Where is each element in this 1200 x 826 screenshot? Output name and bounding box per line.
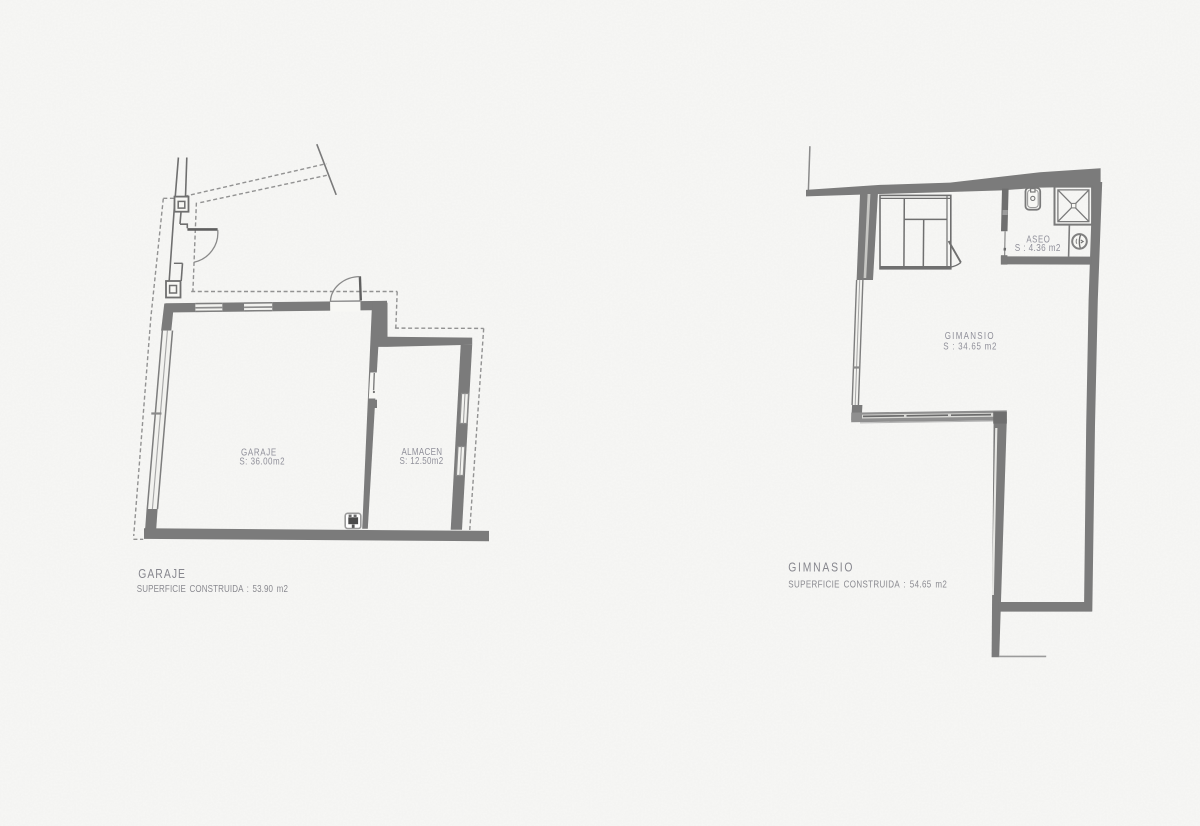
svg-text:GIMNASIO: GIMNASIO [788,561,854,575]
svg-text:S: 36.00m2: S: 36.00m2 [239,456,285,467]
svg-text:S : 4.36 m2: S : 4.36 m2 [1015,242,1061,253]
svg-text:S : 34.65 m2: S : 34.65 m2 [943,341,997,352]
svg-text:SUPERFICIE CONSTRUIDA : 53.90: SUPERFICIE CONSTRUIDA : 53.90 m2 [137,583,288,594]
svg-text:GARAJE: GARAJE [138,567,186,581]
svg-text:S: 12.50m2: S: 12.50m2 [399,455,443,466]
svg-text:SUPERFICIE CONSTRUIDA : 54.65: SUPERFICIE CONSTRUIDA : 54.65 m2 [788,579,947,590]
